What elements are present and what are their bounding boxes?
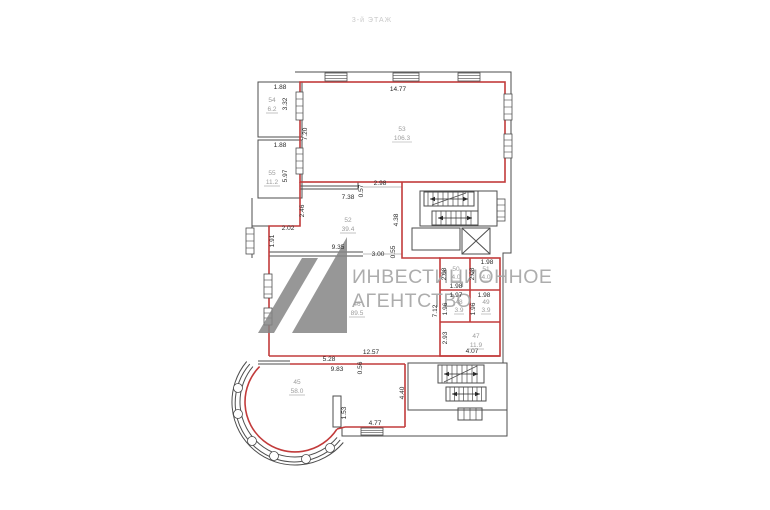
dimension-label: 1.53	[341, 406, 348, 419]
window-icon	[296, 92, 303, 120]
dimension-label: 4.77	[369, 420, 382, 427]
dimension-label: 2.98	[374, 180, 387, 187]
dimension-label: 2.46	[299, 204, 306, 217]
room-number: 54	[268, 97, 276, 104]
room-52-right-wall	[402, 182, 440, 258]
stair-landing	[412, 228, 460, 250]
window-icon	[458, 73, 480, 81]
dimension-label: 2.02	[282, 225, 295, 232]
dimension-label: 2.08	[441, 267, 448, 280]
window-icon	[504, 94, 512, 120]
room-label-55: 55 11.2	[264, 170, 280, 186]
room-area: 4.0	[451, 274, 460, 281]
room-label-52: 52 39.4	[340, 217, 356, 233]
window-icon	[325, 73, 347, 81]
room-45-bay-arc	[245, 367, 337, 452]
dimension-label: 9.35	[332, 244, 345, 251]
dimension-label: 7.12	[432, 304, 439, 317]
dimension-label: 2.08	[469, 267, 476, 280]
dimension-label: 1.96	[470, 302, 477, 315]
dimension-label: 0.57	[358, 184, 365, 197]
room-area: 3.9	[481, 307, 490, 314]
dimension-label: 7.38	[342, 194, 355, 201]
window-icon	[361, 428, 383, 435]
stair-flight-upper	[438, 365, 484, 383]
window-icon	[393, 73, 419, 81]
dimension-label: 3.32	[282, 97, 289, 110]
dimension-label: 9.83	[331, 366, 344, 373]
room-label-51: 51 4.0	[481, 266, 491, 281]
room-label-48: 48 3.9	[454, 299, 464, 314]
room-area: 58.0	[291, 388, 304, 395]
window-icon	[296, 148, 303, 174]
room-area: 39.4	[342, 226, 355, 233]
elevator-x-icon	[462, 228, 490, 254]
dimension-label: 1.91	[269, 234, 276, 247]
wall-stub	[333, 396, 341, 427]
window-icon	[246, 228, 254, 254]
room-number: 51	[482, 266, 490, 273]
room-label-54: 54 6.2	[266, 97, 278, 113]
outer-wall-left	[252, 198, 269, 258]
room-number: 45	[293, 379, 301, 386]
room-number: 50	[452, 266, 460, 273]
stair-flight-lower	[432, 211, 478, 225]
dimension-label: 1.96	[442, 302, 449, 315]
room-number: 46	[353, 301, 361, 308]
bay-window	[232, 362, 343, 466]
room-area: 6.2	[267, 106, 276, 113]
floor-plan: ИНВЕСТИЦИОННОЕ АГЕНТСТВО 3-й ЭТАЖ 1.88 3…	[0, 0, 770, 510]
dimension-label: 1.97	[450, 292, 463, 299]
room-label-53: 53 106.3	[392, 126, 412, 142]
bottom-staircase	[408, 363, 507, 420]
dimension-label: 0.55	[390, 245, 397, 258]
column-icon	[270, 452, 279, 461]
room-label-47: 47 11.9	[468, 333, 484, 349]
window-icon	[264, 274, 272, 298]
dimension-label: 7.20	[302, 127, 309, 140]
dimension-label: 1.98	[478, 292, 491, 299]
window-icon	[504, 134, 512, 158]
dimension-label: 0.56	[357, 361, 364, 374]
dimension-label: 4.38	[393, 213, 400, 226]
dimension-label: 1.98	[481, 259, 494, 266]
column-icon	[234, 384, 243, 393]
dimension-label: 1.88	[274, 84, 287, 91]
room-number: 53	[398, 126, 406, 133]
dimension-label: 14.77	[390, 86, 407, 93]
dimension-label: 12.57	[363, 349, 380, 356]
bay-sill	[258, 361, 290, 364]
room-label-49: 49 3.9	[481, 299, 491, 314]
column-icon	[234, 410, 243, 419]
watermark: ИНВЕСТИЦИОННОЕ АГЕНТСТВО	[258, 237, 552, 333]
room-number: 52	[344, 217, 352, 224]
dimension-label: 5.28	[323, 356, 336, 363]
dimension-label: 2.93	[442, 331, 449, 344]
floor-plan-page: ИНВЕСТИЦИОННОЕ АГЕНТСТВО 3-й ЭТАЖ 1.88 3…	[0, 0, 770, 510]
middle-staircase	[412, 191, 497, 254]
dimension-label: 5.97	[282, 169, 289, 182]
partition-room52-46	[269, 252, 363, 256]
floor-title: 3-й ЭТАЖ	[352, 16, 392, 24]
room-area: 89.5	[351, 310, 364, 317]
room-number: 49	[482, 299, 490, 306]
room-area: 11.9	[470, 342, 483, 349]
outer-wall-bottom	[342, 363, 507, 436]
dimension-label: 3.00	[372, 251, 385, 258]
room-area: 4.0	[481, 274, 490, 281]
dimension-label: 1.88	[274, 142, 287, 149]
elevator-shaft	[462, 228, 490, 254]
stair-flight-upper	[424, 192, 474, 206]
room-label-50: 50 4.0	[451, 266, 461, 281]
window-icon	[497, 199, 505, 221]
room-area: 11.2	[266, 179, 279, 186]
partition-jog	[300, 182, 358, 189]
room-area: 3.9	[454, 307, 463, 314]
column-icon	[248, 437, 257, 446]
room-number: 55	[268, 170, 276, 177]
room-label-45: 45 58.0	[289, 379, 305, 395]
column-icon	[326, 444, 335, 453]
stair-flight-lower	[446, 387, 486, 401]
dimension-label: 1.98	[450, 283, 463, 290]
dimension-label: 4.40	[399, 386, 406, 399]
room-number: 48	[455, 299, 463, 306]
room-number: 47	[472, 333, 480, 340]
room-area: 106.3	[394, 135, 411, 142]
column-icon	[302, 455, 311, 464]
